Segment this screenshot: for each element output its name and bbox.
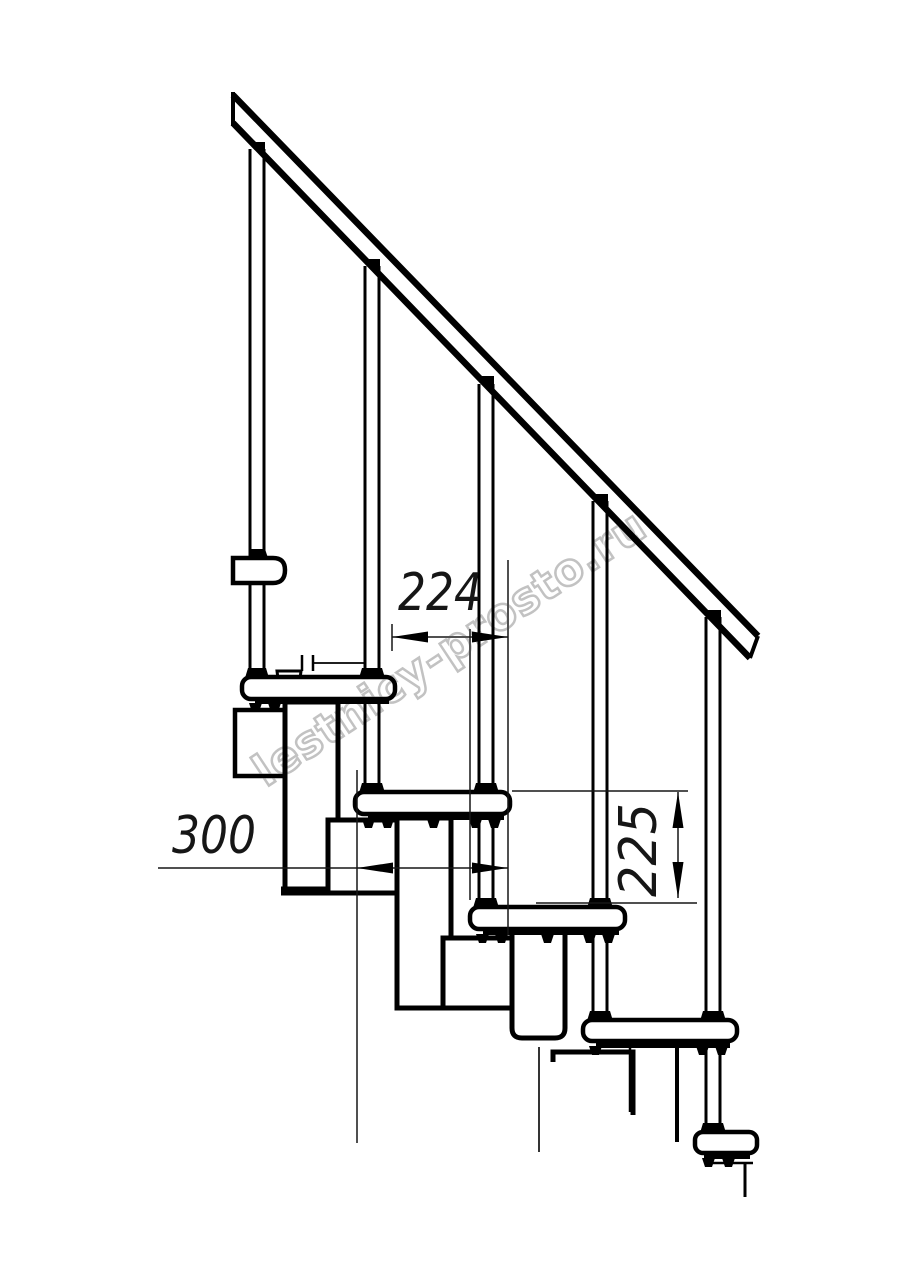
tread-3-collar — [483, 928, 619, 935]
module-block-3-partial — [553, 1052, 633, 1115]
baluster-1-foot — [245, 668, 269, 678]
baluster-3-foot — [473, 898, 499, 908]
arrow-down — [673, 862, 684, 898]
baluster-3-crossing — [473, 783, 499, 793]
tread-1 — [242, 677, 395, 699]
upper-attach-plate — [235, 710, 285, 776]
tread-2-collar — [368, 813, 504, 820]
bracket-collar — [248, 549, 268, 558]
tread-3 — [470, 907, 625, 929]
baluster-2 — [364, 259, 380, 792]
baluster-5-foot — [700, 1123, 726, 1133]
tread-4 — [583, 1020, 737, 1041]
dimension-going: 224 — [392, 563, 508, 643]
tread-5-collar — [704, 1152, 750, 1159]
tread-1-collar — [255, 697, 389, 704]
handrail-bracket — [233, 549, 285, 583]
baluster-2-crossing — [359, 668, 385, 678]
tread-4-collar — [596, 1041, 730, 1048]
baluster-5-crossing — [700, 1011, 726, 1021]
dimension-rise: 225 — [609, 792, 684, 898]
handrail — [233, 92, 758, 658]
baluster-1 — [249, 142, 265, 677]
tread-5 — [695, 1132, 757, 1153]
baluster-4-foot — [587, 1011, 613, 1021]
module-tube-3 — [512, 933, 565, 1038]
staircase-technical-drawing: 224 300 225 lestnicy-prosto.ru — [0, 0, 914, 1280]
tread-2 — [355, 792, 510, 814]
dimension-going-label: 224 — [398, 563, 482, 623]
module-block-2 — [443, 938, 518, 1008]
arrow-left — [392, 632, 428, 643]
arrow-right — [472, 863, 508, 874]
arrow-right — [472, 632, 508, 643]
dimension-rise-label: 225 — [609, 803, 669, 897]
handrail-end-cut — [750, 636, 758, 658]
module-block-1 — [328, 820, 403, 893]
baluster-2-foot — [359, 783, 385, 793]
staircase-drawing-svg: 224 300 225 — [0, 0, 914, 1280]
arrow-up — [673, 792, 684, 828]
dimension-depth-label: 300 — [172, 806, 256, 866]
